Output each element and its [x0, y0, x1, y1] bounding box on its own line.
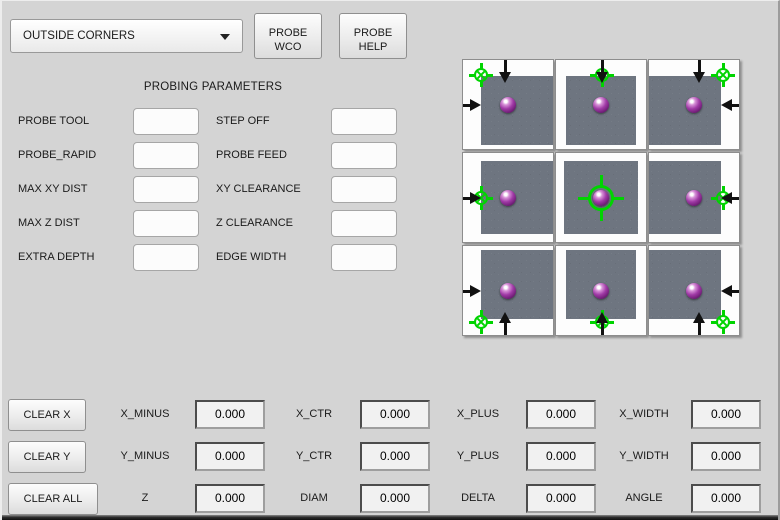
x-width-value: 0.000: [691, 400, 761, 429]
z-clearance-input[interactable]: [331, 210, 397, 237]
arrow-down-icon: [693, 60, 705, 83]
xy-clearance-input[interactable]: [331, 176, 397, 203]
clear-x-button[interactable]: CLEAR X: [8, 399, 86, 431]
probe-ball-icon: [500, 283, 516, 299]
probe-wco-button-label-line1: PROBE: [261, 26, 315, 40]
step-off-label: STEP OFF: [216, 108, 270, 135]
probe-image-center: [555, 152, 647, 243]
probe-tool-label: PROBE TOOL: [18, 108, 89, 135]
arrow-up-icon: [596, 312, 608, 335]
probe-target-icon: [469, 63, 493, 87]
diam-value: 0.000: [360, 484, 430, 513]
z-label: Z: [90, 484, 200, 513]
clear-all-button[interactable]: CLEAR ALL: [8, 483, 98, 515]
xy-clearance-label: XY CLEARANCE: [216, 176, 301, 203]
probe-image-top-left-corner: [462, 59, 554, 150]
y-width-label: Y_WIDTH: [589, 442, 699, 471]
step-off-input[interactable]: [331, 108, 397, 135]
probe-tool-input[interactable]: [133, 108, 199, 135]
probe-help-button-label-line2: HELP: [346, 40, 400, 54]
arrow-right-icon: [463, 285, 481, 297]
x-minus-value: 0.000: [195, 400, 265, 429]
workpiece-square: [481, 250, 554, 319]
y-ctr-value: 0.000: [360, 442, 430, 471]
chevron-down-icon: [220, 34, 230, 40]
extra-depth-input[interactable]: [133, 244, 199, 271]
arrow-left-icon: [721, 99, 739, 111]
arrow-down-icon: [499, 60, 511, 83]
probe-image-right-edge: [648, 152, 740, 243]
x-plus-label: X_PLUS: [423, 400, 533, 429]
probe-ball-icon: [500, 190, 516, 206]
probe-wco-button-label-line2: WCO: [261, 40, 315, 54]
x-ctr-value: 0.000: [360, 400, 430, 429]
probing-parameters-title: PROBING PARAMETERS: [2, 81, 424, 93]
y-width-value: 0.000: [691, 442, 761, 471]
arrow-up-icon: [499, 312, 511, 335]
probe-image-bottom-left-corner: [462, 245, 554, 336]
probe-screen-window: OUTSIDE CORNERS PROBE WCO PROBE HELP PRO…: [0, 0, 780, 520]
probe-target-icon: [469, 310, 493, 334]
delta-label: DELTA: [423, 484, 533, 513]
probe-mode-dropdown[interactable]: OUTSIDE CORNERS: [10, 19, 243, 53]
probe-target-icon: [578, 175, 624, 221]
probe-rapid-input[interactable]: [133, 142, 199, 169]
arrow-left-icon: [721, 285, 739, 297]
max-xy-dist-label: MAX XY DIST: [18, 176, 87, 203]
y-plus-value: 0.000: [526, 442, 596, 471]
probe-help-button-label-line1: PROBE: [346, 26, 400, 40]
probe-ball-icon: [593, 283, 609, 299]
angle-value: 0.000: [691, 484, 761, 513]
edge-width-label: EDGE WIDTH: [216, 244, 286, 271]
extra-depth-label: EXTRA DEPTH: [18, 244, 94, 271]
x-ctr-label: X_CTR: [259, 400, 369, 429]
probe-ball-icon: [500, 97, 516, 113]
probe-ball-icon: [593, 97, 609, 113]
arrow-left-icon: [721, 192, 739, 204]
y-minus-value: 0.000: [195, 442, 265, 471]
clear-y-button[interactable]: CLEAR Y: [8, 441, 86, 473]
y-ctr-label: Y_CTR: [259, 442, 369, 471]
max-xy-dist-input[interactable]: [133, 176, 199, 203]
probe-rapid-label: PROBE_RAPID: [18, 142, 96, 169]
z-value: 0.000: [195, 484, 265, 513]
probe-image-top-edge: [555, 59, 647, 150]
max-z-dist-label: MAX Z DIST: [18, 210, 80, 237]
probe-ball-icon: [686, 190, 702, 206]
probe-feed-label: PROBE FEED: [216, 142, 287, 169]
x-width-label: X_WIDTH: [589, 400, 699, 429]
probe-help-button[interactable]: PROBE HELP: [339, 13, 407, 59]
probe-feed-input[interactable]: [331, 142, 397, 169]
arrow-right-icon: [463, 192, 481, 204]
x-minus-label: X_MINUS: [90, 400, 200, 429]
probe-wco-button[interactable]: PROBE WCO: [254, 13, 322, 59]
angle-label: ANGLE: [589, 484, 699, 513]
probe-ball-icon: [686, 283, 702, 299]
max-z-dist-input[interactable]: [133, 210, 199, 237]
probe-mode-selected-value: OUTSIDE CORNERS: [23, 20, 135, 52]
probe-target-icon: [711, 63, 735, 87]
window-bottom-edge: [2, 515, 778, 520]
y-minus-label: Y_MINUS: [90, 442, 200, 471]
probe-target-icon: [711, 310, 735, 334]
probe-ball-icon: [686, 97, 702, 113]
diam-label: DIAM: [259, 484, 369, 513]
probe-image-left-edge: [462, 152, 554, 243]
x-plus-value: 0.000: [526, 400, 596, 429]
probe-position-grid: [462, 59, 740, 336]
z-clearance-label: Z CLEARANCE: [216, 210, 293, 237]
arrow-up-icon: [693, 312, 705, 335]
arrow-right-icon: [463, 99, 481, 111]
y-plus-label: Y_PLUS: [423, 442, 533, 471]
probe-image-bottom-edge: [555, 245, 647, 336]
workpiece-square: [648, 250, 721, 319]
arrow-down-icon: [596, 60, 608, 83]
edge-width-input[interactable]: [331, 244, 397, 271]
probe-image-bottom-right-corner: [648, 245, 740, 336]
delta-value: 0.000: [526, 484, 596, 513]
probe-image-top-right-corner: [648, 59, 740, 150]
